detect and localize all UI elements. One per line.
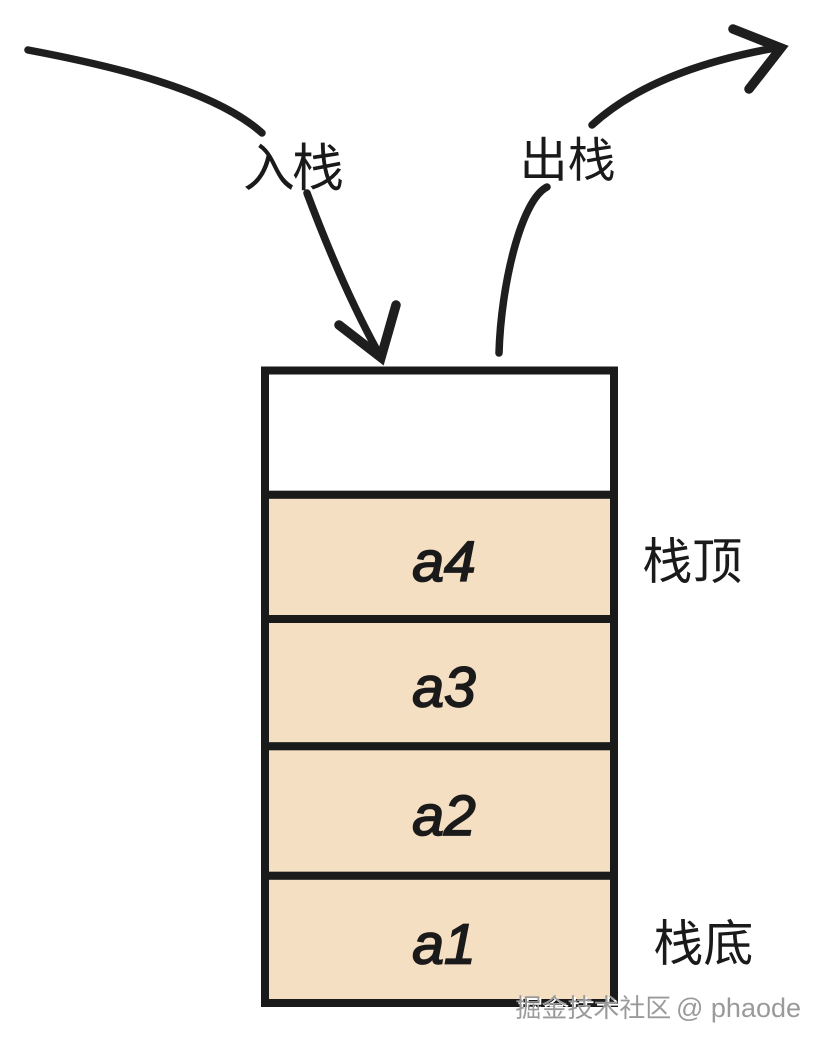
- svg-text:a3: a3: [412, 656, 476, 720]
- svg-text:a1: a1: [412, 912, 475, 976]
- svg-text:a2: a2: [412, 784, 475, 848]
- svg-text:a4: a4: [412, 530, 475, 594]
- svg-text:@ phaode: @ phaode: [676, 993, 801, 1023]
